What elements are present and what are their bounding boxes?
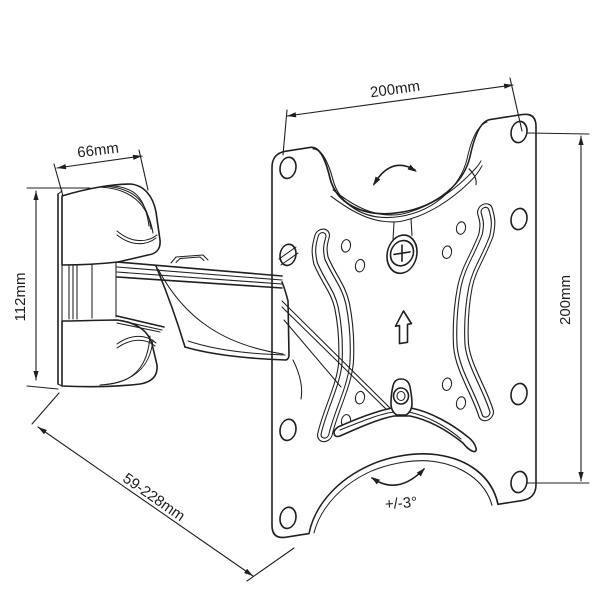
dim-extension-range-label: 59-228mm xyxy=(119,470,187,525)
dim-plate-height-label: 200mm xyxy=(557,275,574,325)
dim-wall-bracket-width-label: 66mm xyxy=(76,140,119,162)
vesa-plate xyxy=(272,112,536,539)
tilt-range-label: +/-3° xyxy=(384,494,417,513)
bracket-bottom-block xyxy=(62,320,157,387)
swivel-arrow-icon xyxy=(373,165,417,186)
dim-wall-bracket-height-label: 112mm xyxy=(12,273,29,322)
wall-bracket xyxy=(58,184,160,387)
bracket-top-block xyxy=(62,184,160,265)
dim-extension-range: 59-228mm xyxy=(32,393,294,581)
tilt-arc-icon xyxy=(371,468,425,485)
dim-plate-width-label: 200mm xyxy=(369,78,421,102)
mount-technical-drawing: +/-3° 66mm 112mm 59-228mm 200mm xyxy=(0,0,600,600)
